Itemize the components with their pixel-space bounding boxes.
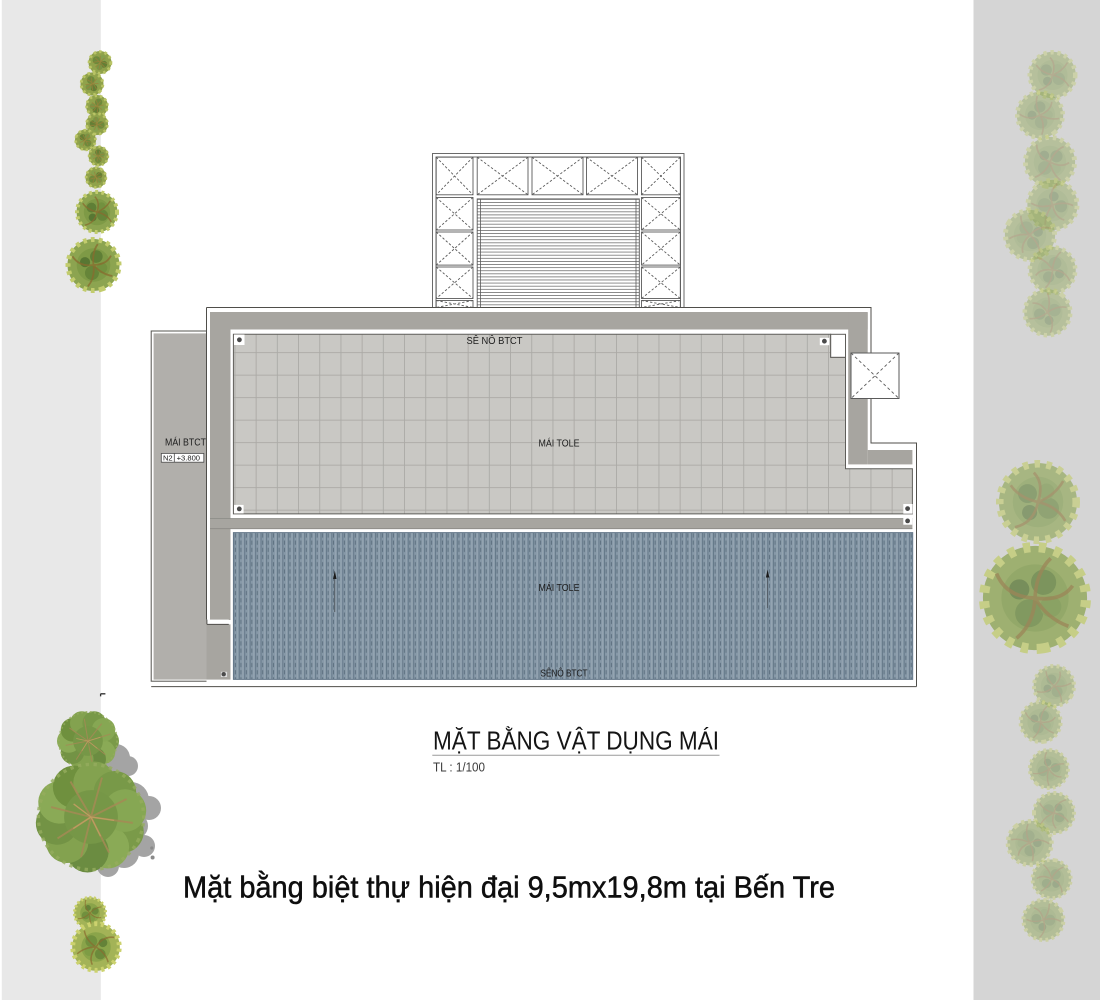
svg-text:Mặt bằng biệt thự hiện đại 9,5: Mặt bằng biệt thự hiện đại 9,5mx19,8m tạ… <box>183 870 835 905</box>
svg-text:MÁI TOLE: MÁI TOLE <box>539 581 580 594</box>
svg-text:MÁI TOLE: MÁI TOLE <box>539 437 580 450</box>
svg-text:SÊ NÔ BTCT: SÊ NÔ BTCT <box>467 334 524 347</box>
svg-text:MẶT BẰNG VẬT DỤNG MÁI: MẶT BẰNG VẬT DỤNG MÁI <box>433 726 719 756</box>
svg-text:SÊNÔ BTCT: SÊNÔ BTCT <box>541 667 589 680</box>
svg-text:+3.800: +3.800 <box>177 453 200 462</box>
svg-text:TL : 1/100: TL : 1/100 <box>433 760 485 775</box>
svg-text:MÁI BTCT: MÁI BTCT <box>165 436 207 449</box>
svg-text:N2: N2 <box>163 453 173 462</box>
